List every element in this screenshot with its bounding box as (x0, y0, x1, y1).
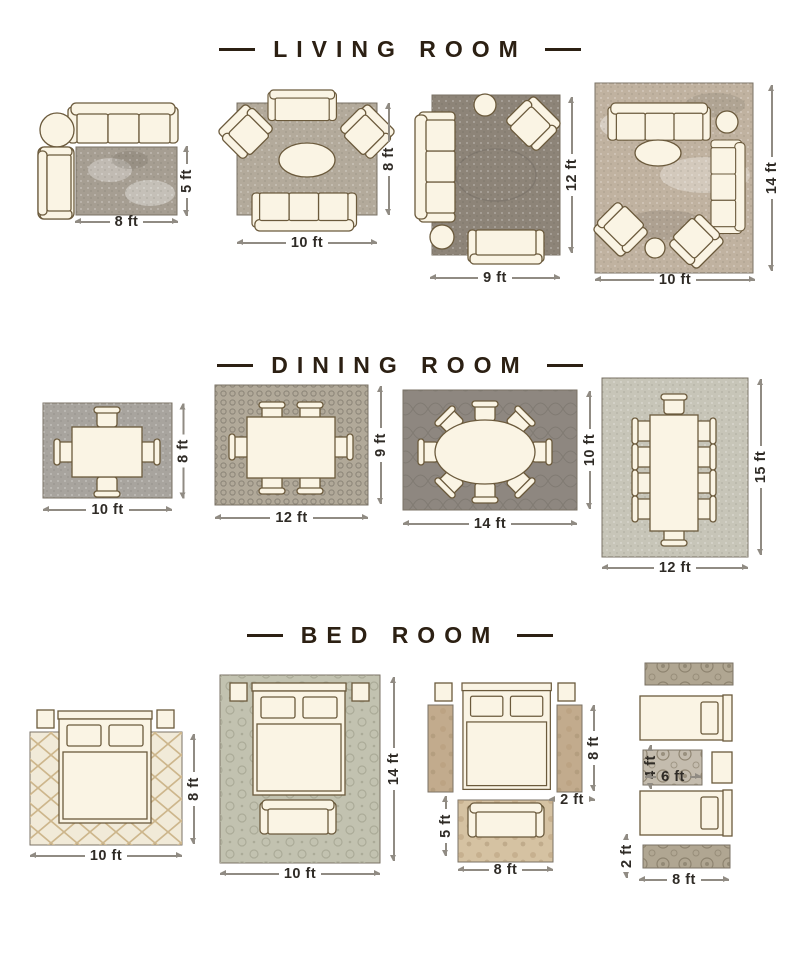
dim-arrow-line (220, 873, 279, 875)
dim-arrow-line (696, 567, 748, 569)
dim-arrow-line (186, 198, 188, 216)
round-side-table (645, 238, 665, 258)
dim-arrow-line (458, 869, 489, 871)
dim-runner-width-bed-4: 8 ft (639, 871, 729, 889)
dim-foot-rug-height-bed-3: 5 ft (437, 796, 455, 856)
dim-arrow-line (771, 85, 773, 157)
dim-height-living-3: 12 ft (563, 97, 581, 253)
area-rug (76, 147, 177, 215)
dining-table (650, 415, 698, 531)
living-room-scene-1 (30, 95, 190, 225)
dim-arrow-line (393, 790, 395, 861)
dim-arrow-line (639, 879, 667, 881)
title-dash (517, 634, 553, 637)
dim-arrow-line (589, 799, 595, 801)
dining-chair (661, 394, 687, 414)
dim-arrow-line (549, 799, 555, 801)
dim-arrow-line (430, 277, 478, 279)
dim-arrow-line (696, 279, 755, 281)
dim-width-dining-4: 12 ft (602, 559, 748, 577)
dim-arrow-line (760, 379, 762, 446)
round-side-table (474, 94, 496, 116)
dim-label: 12 ft (659, 560, 691, 576)
dim-arrow-line (388, 103, 390, 142)
dim-arrow-line (645, 776, 656, 778)
title-dash (219, 48, 255, 51)
section-title-text: LIVING ROOM (273, 36, 527, 63)
dim-arrow-line (511, 523, 577, 525)
dim-label: 12 ft (275, 510, 307, 526)
living-room-scene-4 (585, 75, 765, 285)
dim-height-dining-3: 10 ft (581, 391, 599, 509)
bench (260, 800, 336, 834)
nightstand (37, 710, 54, 728)
dim-arrow-line (445, 843, 447, 856)
dim-arrow-line (193, 734, 195, 772)
dining-chair (696, 418, 716, 444)
round-side-table (40, 113, 74, 147)
dim-arrow-line (593, 765, 595, 791)
dim-height-dining-1: 8 ft (175, 404, 193, 499)
dining-room-scene-1 (35, 395, 185, 510)
dim-arrow-line (571, 97, 573, 154)
bed-room-scene-2 (212, 668, 392, 868)
dim-width-living-1: 8 ft (75, 213, 178, 231)
dim-height-dining-2: 9 ft (372, 386, 390, 504)
dim-label: 10 ft (291, 235, 323, 251)
dining-chair (632, 470, 652, 496)
dim-label: 2 ft (619, 844, 635, 868)
dim-runner-width-bed-3: 2 ft (549, 791, 595, 809)
dim-arrow-line (313, 517, 368, 519)
round-side-table (716, 111, 738, 133)
dining-table (247, 417, 335, 478)
dim-arrow-line (183, 404, 185, 435)
dim-arrow-line (388, 176, 390, 215)
dim-label: 8 ft (494, 862, 518, 878)
oval-dining-table (435, 420, 535, 484)
nightstand (435, 683, 452, 701)
dim-arrow-line (328, 242, 377, 244)
dining-chair (632, 418, 652, 444)
runner-rug (643, 845, 730, 868)
oval-coffee-table (279, 143, 335, 177)
dim-label: 5 ft (438, 814, 454, 838)
loveseat (268, 90, 336, 121)
sofa (608, 103, 710, 140)
nightstand (558, 683, 575, 701)
dim-arrow-line (589, 471, 591, 509)
dim-label: 14 ft (474, 516, 506, 532)
dim-label: 12 ft (564, 159, 580, 191)
title-dash (247, 634, 283, 637)
dim-height-living-1: 5 ft (178, 146, 196, 216)
bed (462, 683, 551, 789)
dim-height-bed-2: 14 ft (385, 677, 403, 861)
sofa (415, 112, 455, 222)
dim-label: 8 ft (672, 872, 696, 888)
dim-arrow-line (701, 879, 729, 881)
bench (468, 803, 544, 837)
dim-height-living-4: 14 ft (763, 85, 781, 271)
oval-coffee-table (635, 140, 681, 166)
section-title-text: BED ROOM (301, 622, 500, 649)
dim-arrow-line (595, 279, 654, 281)
sofa (252, 193, 357, 231)
dim-arrow-line (445, 796, 447, 809)
dim-height-living-2: 8 ft (380, 103, 398, 215)
dining-chair (94, 407, 120, 427)
dim-arrow-line (571, 196, 573, 253)
sofa (68, 103, 178, 143)
dining-chair (333, 434, 353, 460)
nightstand (157, 710, 174, 728)
dim-label: 10 ft (582, 434, 598, 466)
dim-arrow-line (771, 199, 773, 271)
dining-chair (94, 477, 120, 497)
bed (252, 683, 346, 795)
dim-arrow-line (186, 146, 188, 164)
dim-mid-rug-width-bed-4: 6 ft (645, 768, 701, 786)
dim-width-bed-2: 10 ft (220, 865, 380, 883)
runner-rug (645, 663, 733, 685)
dim-arrow-line (690, 776, 701, 778)
nightstand (230, 683, 247, 701)
runner-rug (428, 705, 453, 792)
dim-arrow-line (380, 462, 382, 504)
dim-width-dining-2: 12 ft (215, 509, 368, 527)
dim-arrow-line (75, 221, 110, 223)
dining-chair (54, 439, 74, 465)
dim-arrow-line (43, 509, 86, 511)
dim-label: 8 ft (186, 777, 202, 801)
dim-arrow-line (30, 855, 85, 857)
title-dash (545, 48, 581, 51)
living-room-scene-3 (395, 85, 580, 270)
bed-room-scene-1 (25, 700, 200, 850)
chaise-sofa (38, 147, 74, 219)
dining-room-scene-4 (598, 373, 763, 563)
dim-runner-height-bed-4: 2 ft (618, 836, 636, 878)
dim-label: 14 ft (386, 753, 402, 785)
dim-label: 8 ft (586, 736, 602, 760)
dim-arrow-line (321, 873, 380, 875)
dim-label: 6 ft (661, 769, 685, 785)
dining-chair (696, 496, 716, 522)
dim-label: 8 ft (115, 214, 139, 230)
dim-label: 2 ft (560, 792, 584, 808)
round-side-table (430, 225, 454, 249)
dining-chair (632, 444, 652, 470)
dining-table (72, 427, 142, 477)
dim-arrow-line (380, 386, 382, 428)
dim-arrow-line (403, 523, 469, 525)
section-title-text: DINING ROOM (271, 352, 528, 379)
sofa (711, 140, 745, 234)
dim-width-dining-3: 14 ft (403, 515, 577, 533)
dim-label: 14 ft (764, 162, 780, 194)
dim-arrow-line (237, 242, 286, 244)
dim-arrow-line (589, 391, 591, 429)
dim-arrow-line (393, 677, 395, 748)
twin-bed (640, 695, 732, 741)
twin-bed (640, 790, 732, 836)
dining-room-scene-3 (398, 385, 583, 515)
dining-chair (696, 444, 716, 470)
dim-arrow-line (183, 468, 185, 499)
title-dash (217, 364, 253, 367)
rug-size-guide: LIVING ROOM DINING ROOM BED ROOM (0, 0, 800, 978)
dim-arrow-line (626, 873, 628, 878)
dining-chair (472, 401, 498, 421)
dim-width-living-3: 9 ft (430, 269, 560, 287)
dim-label: 10 ft (90, 848, 122, 864)
dim-arrow-line (512, 277, 560, 279)
dining-room-scene-2 (210, 380, 375, 510)
dim-label: 10 ft (284, 866, 316, 882)
dim-arrow-line (127, 855, 182, 857)
dining-chair (696, 470, 716, 496)
dim-runner-height-bed-3: 8 ft (585, 705, 603, 791)
dining-chair (632, 496, 652, 522)
runner-rug (557, 705, 582, 792)
dim-arrow-line (650, 745, 652, 750)
section-title-living-room: LIVING ROOM (0, 36, 800, 63)
dim-label: 5 ft (179, 169, 195, 193)
dim-arrow-line (760, 488, 762, 555)
dim-height-dining-4: 15 ft (752, 379, 770, 555)
dim-width-living-4: 10 ft (595, 271, 755, 289)
dim-arrow-line (143, 221, 178, 223)
dim-label: 9 ft (483, 270, 507, 286)
dining-chair (472, 483, 498, 503)
dim-arrow-line (522, 869, 553, 871)
nightstand (712, 752, 732, 783)
dim-arrow-line (193, 806, 195, 844)
dim-arrow-line (626, 834, 628, 839)
dim-height-bed-1: 8 ft (185, 734, 203, 844)
dim-foot-rug-width-bed-3: 8 ft (458, 861, 553, 879)
dim-width-dining-1: 10 ft (43, 501, 172, 519)
loveseat (468, 230, 544, 264)
living-room-scene-2 (225, 85, 390, 235)
dim-arrow-line (593, 705, 595, 731)
dim-arrow-line (215, 517, 270, 519)
dim-label: 8 ft (176, 439, 192, 463)
dim-label: 10 ft (91, 502, 123, 518)
dim-label: 9 ft (373, 433, 389, 457)
nightstand (352, 683, 369, 701)
dim-label: 10 ft (659, 272, 691, 288)
dim-arrow-line (602, 567, 654, 569)
dining-chair (229, 434, 249, 460)
dining-chair (140, 439, 160, 465)
section-title-bed-room: BED ROOM (0, 622, 800, 649)
dim-arrow-line (129, 509, 172, 511)
dim-label: 8 ft (381, 147, 397, 171)
bed (58, 711, 152, 823)
dim-label: 15 ft (753, 451, 769, 483)
dim-width-living-2: 10 ft (237, 234, 377, 252)
title-dash (547, 364, 583, 367)
dim-width-bed-1: 10 ft (30, 847, 182, 865)
